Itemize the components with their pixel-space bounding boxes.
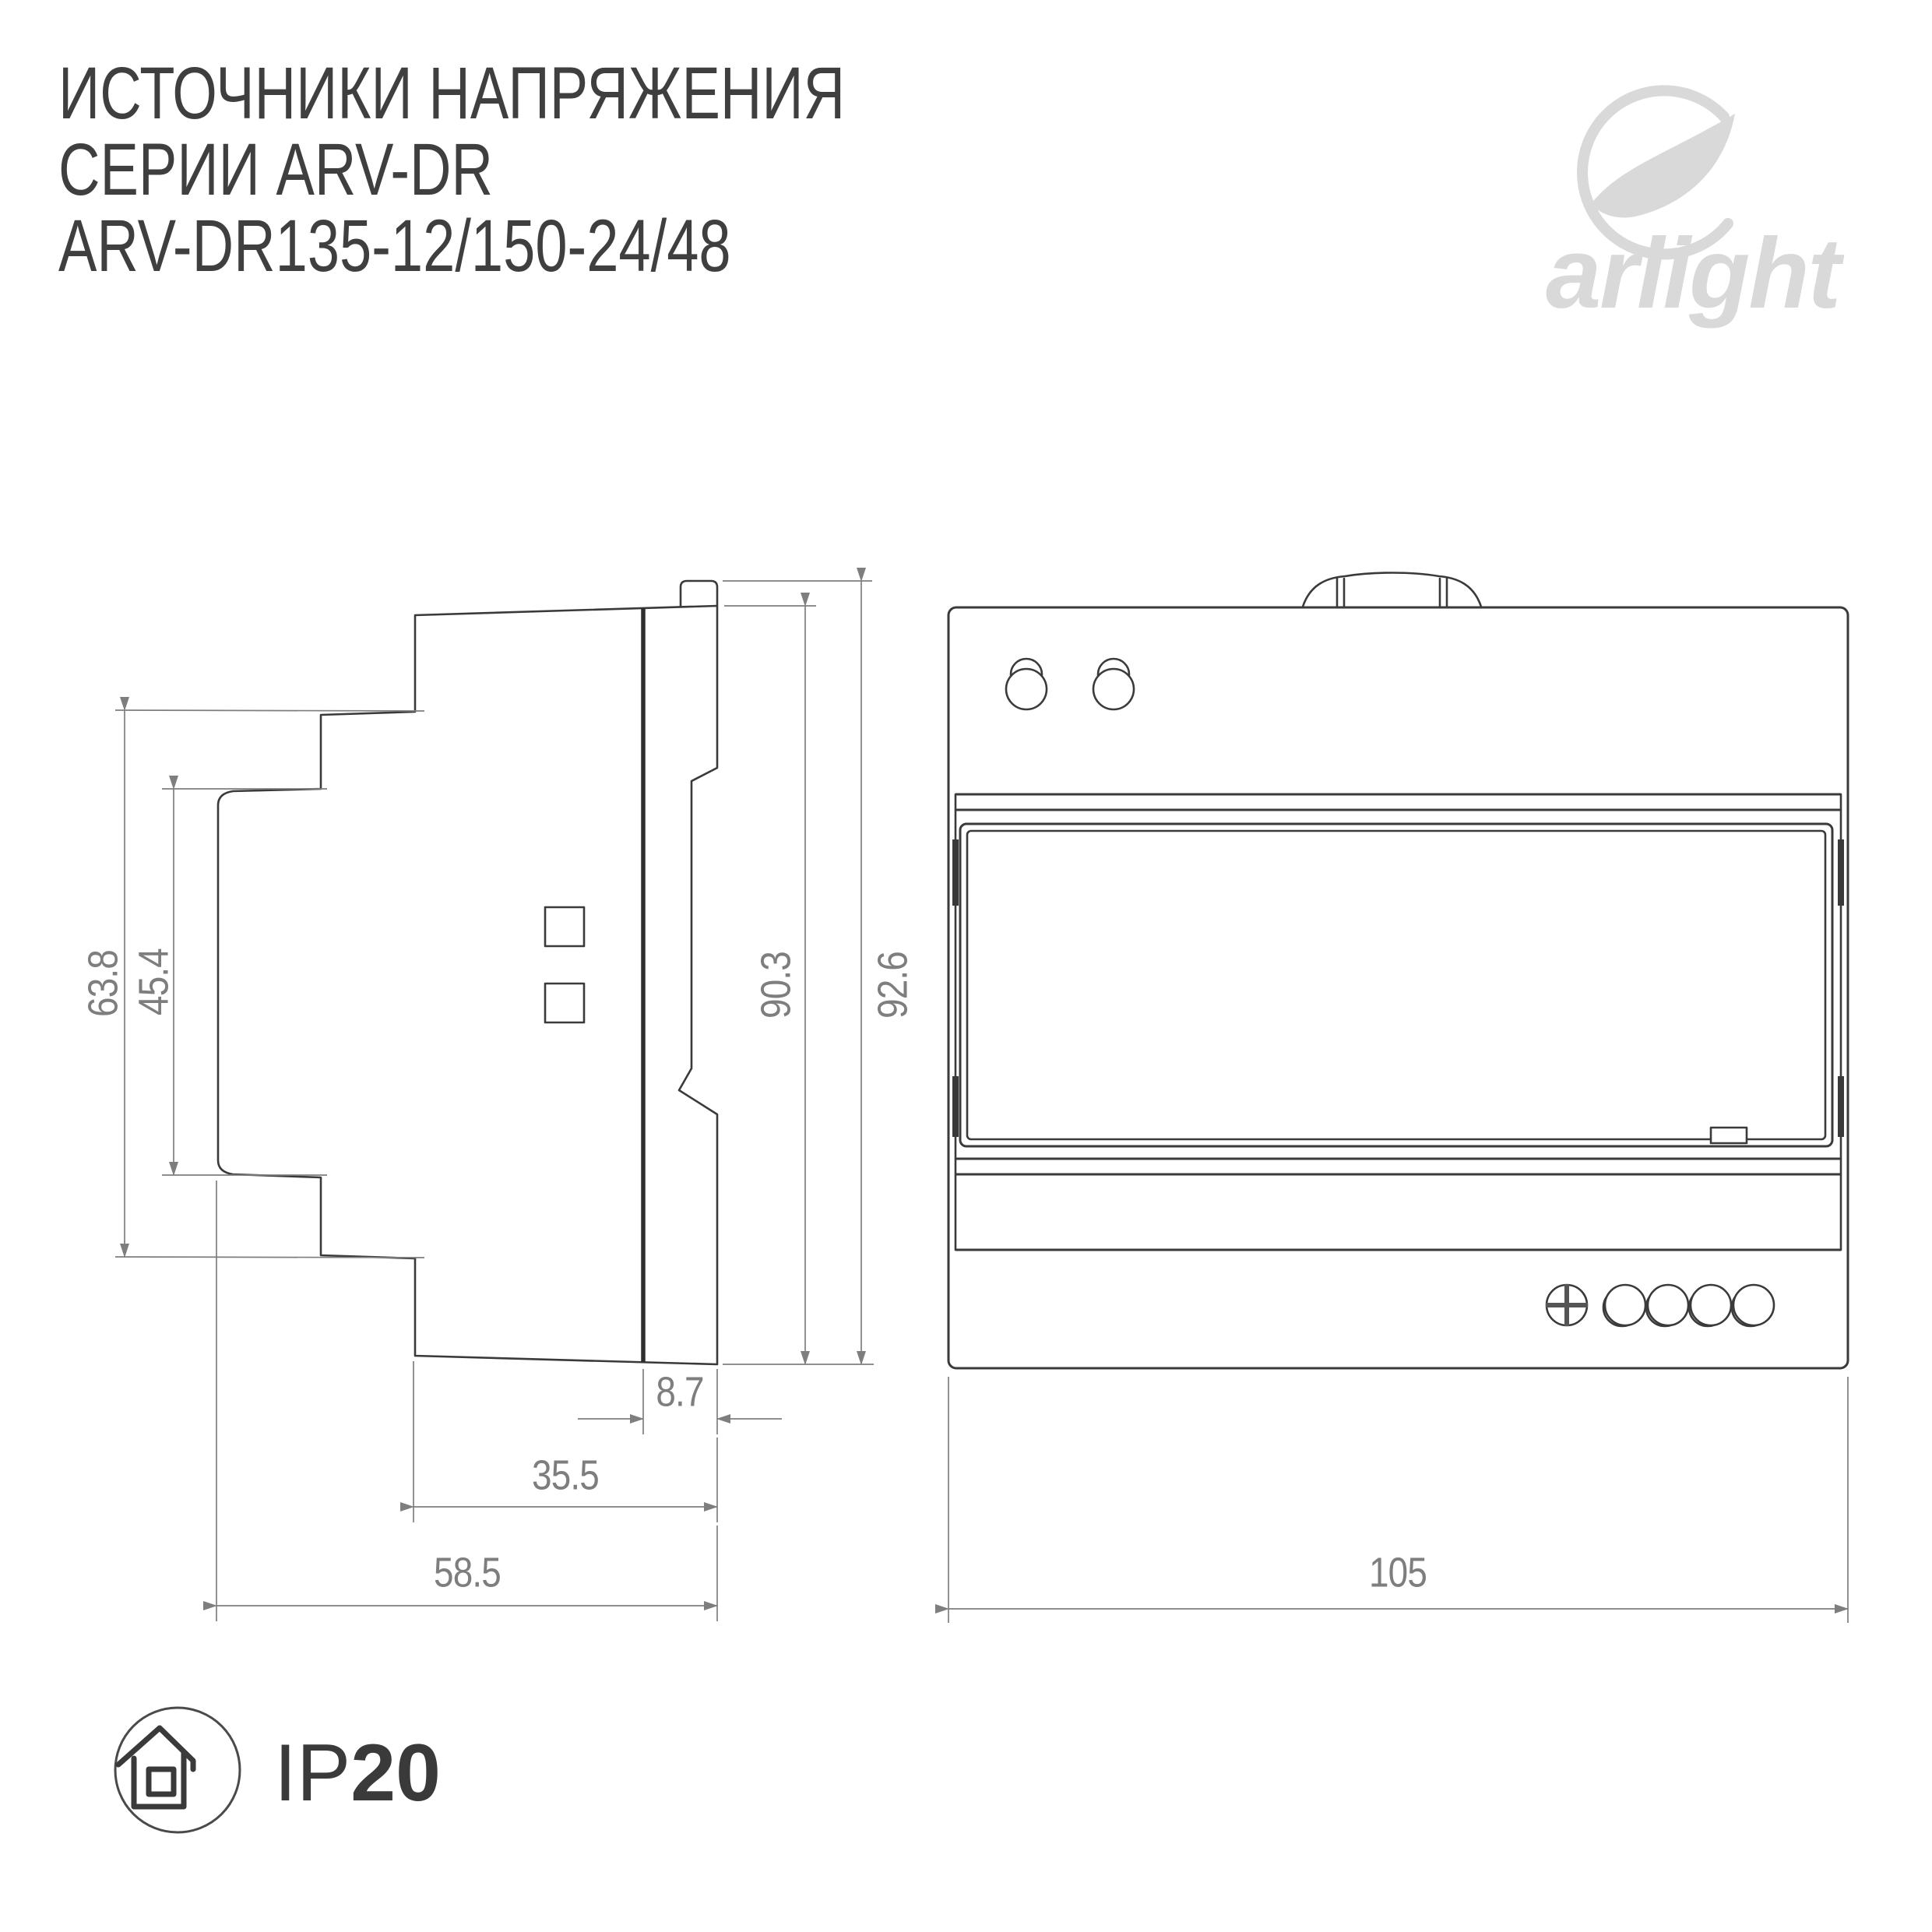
logo-wordmark: arlight bbox=[1546, 218, 1845, 329]
ip20-badge: IP20 bbox=[115, 1708, 441, 1832]
dim-label-45-4: 45.4 bbox=[130, 948, 177, 1015]
front-view bbox=[948, 573, 1848, 1369]
house-icon bbox=[118, 1728, 193, 1807]
page-title-line-2: СЕРИИ ARV-DR bbox=[58, 128, 493, 211]
dim-label-92-6: 92.6 bbox=[869, 952, 916, 1019]
ip-value: 20 bbox=[350, 1728, 441, 1818]
dim-label-58-5: 58.5 bbox=[434, 1549, 501, 1596]
front-view-din-tab bbox=[1303, 573, 1481, 607]
front-view-window-outer bbox=[960, 824, 1832, 1146]
dim-label-105: 105 bbox=[1369, 1549, 1427, 1596]
technical-drawing: ИСТОЧНИКИ НАПРЯЖЕНИЯ СЕРИИ ARV-DR ARV-DR… bbox=[0, 0, 1932, 1932]
side-view-vent-square-2 bbox=[545, 984, 584, 1022]
side-view-din-tab bbox=[681, 581, 717, 606]
arlight-logo: arlight bbox=[1546, 90, 1845, 329]
front-view-ground-screw bbox=[1546, 1284, 1588, 1326]
front-view-window-notch bbox=[1711, 1128, 1747, 1143]
dim-label-63-8: 63.8 bbox=[79, 950, 126, 1017]
dim-label-8-7: 8.7 bbox=[656, 1368, 703, 1415]
dim-label-35-5: 35.5 bbox=[532, 1452, 599, 1498]
page-title: ИСТОЧНИКИ НАПРЯЖЕНИЯ СЕРИИ ARV-DR ARV-DR… bbox=[58, 52, 845, 287]
page-title-line-1: ИСТОЧНИКИ НАПРЯЖЕНИЯ bbox=[58, 52, 845, 135]
ip-prefix: IP bbox=[274, 1728, 350, 1818]
ip-rating-text: IP20 bbox=[274, 1728, 441, 1818]
dimension-105: 105 bbox=[948, 1377, 1848, 1623]
side-view bbox=[218, 581, 717, 1364]
dim-label-90-3: 90.3 bbox=[752, 952, 799, 1019]
dimension-8-7: 8.7 bbox=[578, 1368, 782, 1434]
page-title-line-3: ARV-DR135-12/150-24/48 bbox=[58, 205, 731, 287]
side-view-vent-square-1 bbox=[545, 907, 584, 946]
dimension-90-3: 90.3 bbox=[724, 606, 816, 1364]
